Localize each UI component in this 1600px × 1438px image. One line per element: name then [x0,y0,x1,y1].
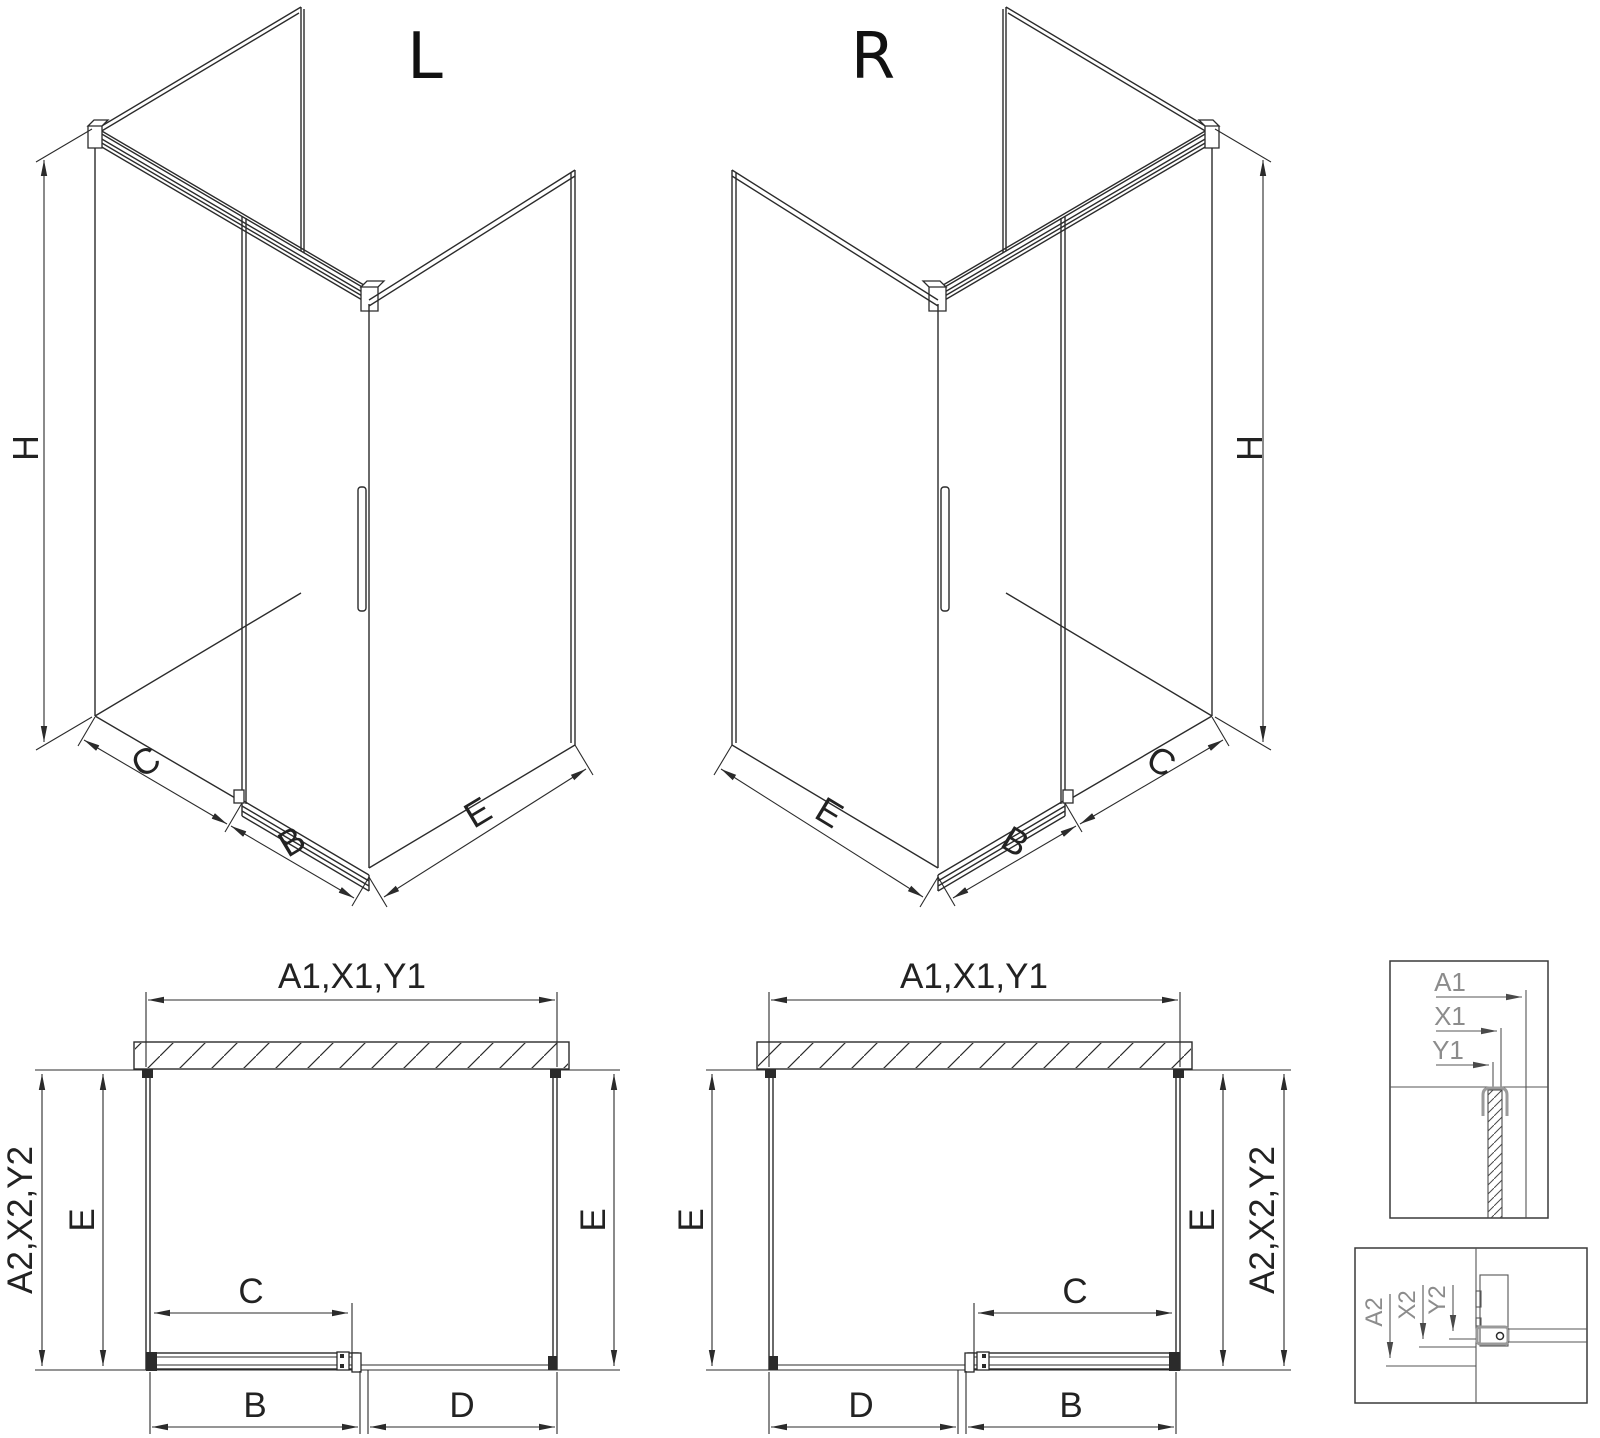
detail-bottom-label-a2: A2 [1361,1297,1388,1326]
wall-hatch-right [758,1043,1191,1068]
top-rail [95,127,369,304]
plan-right-dim-side: A2,X2,Y2 [1243,1146,1282,1294]
side-glass-panel-right [369,170,575,868]
iso-view-left-geometry [36,7,593,907]
plan-right-dim-top: A1,X1,Y1 [900,957,1048,996]
plan-rail-wall-cap [146,1352,157,1371]
iso-right-dim-b: B [995,818,1037,866]
plan-left-dim-e-right: E [574,1208,613,1231]
variant-title-right: R [851,20,895,94]
detail-bottom-label-y2: Y2 [1424,1285,1451,1314]
iso-view-right-geometry [714,7,1271,907]
detail-top-label-a1: A1 [1434,967,1466,997]
iso-right-dim-h: H [1229,435,1270,461]
plan-carrier-pin-top [340,1354,344,1358]
detail-top-border [1390,961,1548,1218]
iso-right-dim-c: C [1140,737,1183,786]
iso-left-dim-b: B [271,818,313,866]
plan-carrier-pin-bottom [340,1364,344,1368]
plan-foot-bracket-right [548,1356,557,1370]
labels-layer: L R H C B E H C B E A1,X1,Y1 A2,X2,Y2 E … [1,20,1466,1425]
detail-box-top [1390,961,1548,1218]
plan-right-dim-b: B [1059,1386,1082,1425]
plan-rail-end-cap [352,1353,361,1372]
plan-right-dim-e-inner: E [1183,1208,1222,1231]
door-leading-edge [242,216,246,804]
plan-glass-right [553,1069,557,1370]
detail-box-bottom [1355,1248,1587,1403]
wall-hatch-left [135,1043,568,1068]
plan-right-dim-c: C [1062,1272,1087,1311]
dim-line-e [384,769,586,897]
plan-dim-ticks-bottom [150,1370,557,1434]
rail-corner-cap [361,281,384,311]
technical-drawing-page: L R H C B E H C B E A1,X1,Y1 A2,X2,Y2 E … [0,0,1600,1438]
detail-top-label-y1: Y1 [1432,1035,1464,1065]
plan-dim-ticks-sides [35,1070,620,1370]
plan-right-dim-e-left: E [672,1208,711,1231]
plan-left-dim-c: C [238,1272,263,1311]
plan-door-rail-tracks [157,1357,352,1365]
iso-left-dim-c: C [124,737,167,786]
plan-left-dim-top: A1,X1,Y1 [278,957,426,996]
plan-left-dim-side: A2,X2,Y2 [1,1146,40,1294]
plan-door-rail [155,1353,358,1369]
shower-enclosure-diagram: L R H C B E H C B E A1,X1,Y1 A2,X2,Y2 E … [0,0,1600,1438]
iso-left-dim-h: H [5,435,46,461]
detail-bottom-label-x2: X2 [1394,1290,1421,1319]
plan-right-dim-d: D [848,1386,873,1425]
plan-glass-left [146,1069,150,1370]
door-handle [358,487,366,611]
detail-bottom-fixing-screw [1497,1333,1504,1340]
plan-left-dim-b: B [243,1386,266,1425]
door-bottom-stopper [234,790,244,803]
detail-top-label-x1: X1 [1434,1001,1466,1031]
plan-left-dim-d: D [449,1386,474,1425]
variant-title-left: L [407,20,443,94]
side-glass-panel-left [95,7,304,716]
plan-left-dim-e-inner: E [63,1208,102,1231]
detail-top-glass [1488,1090,1502,1218]
